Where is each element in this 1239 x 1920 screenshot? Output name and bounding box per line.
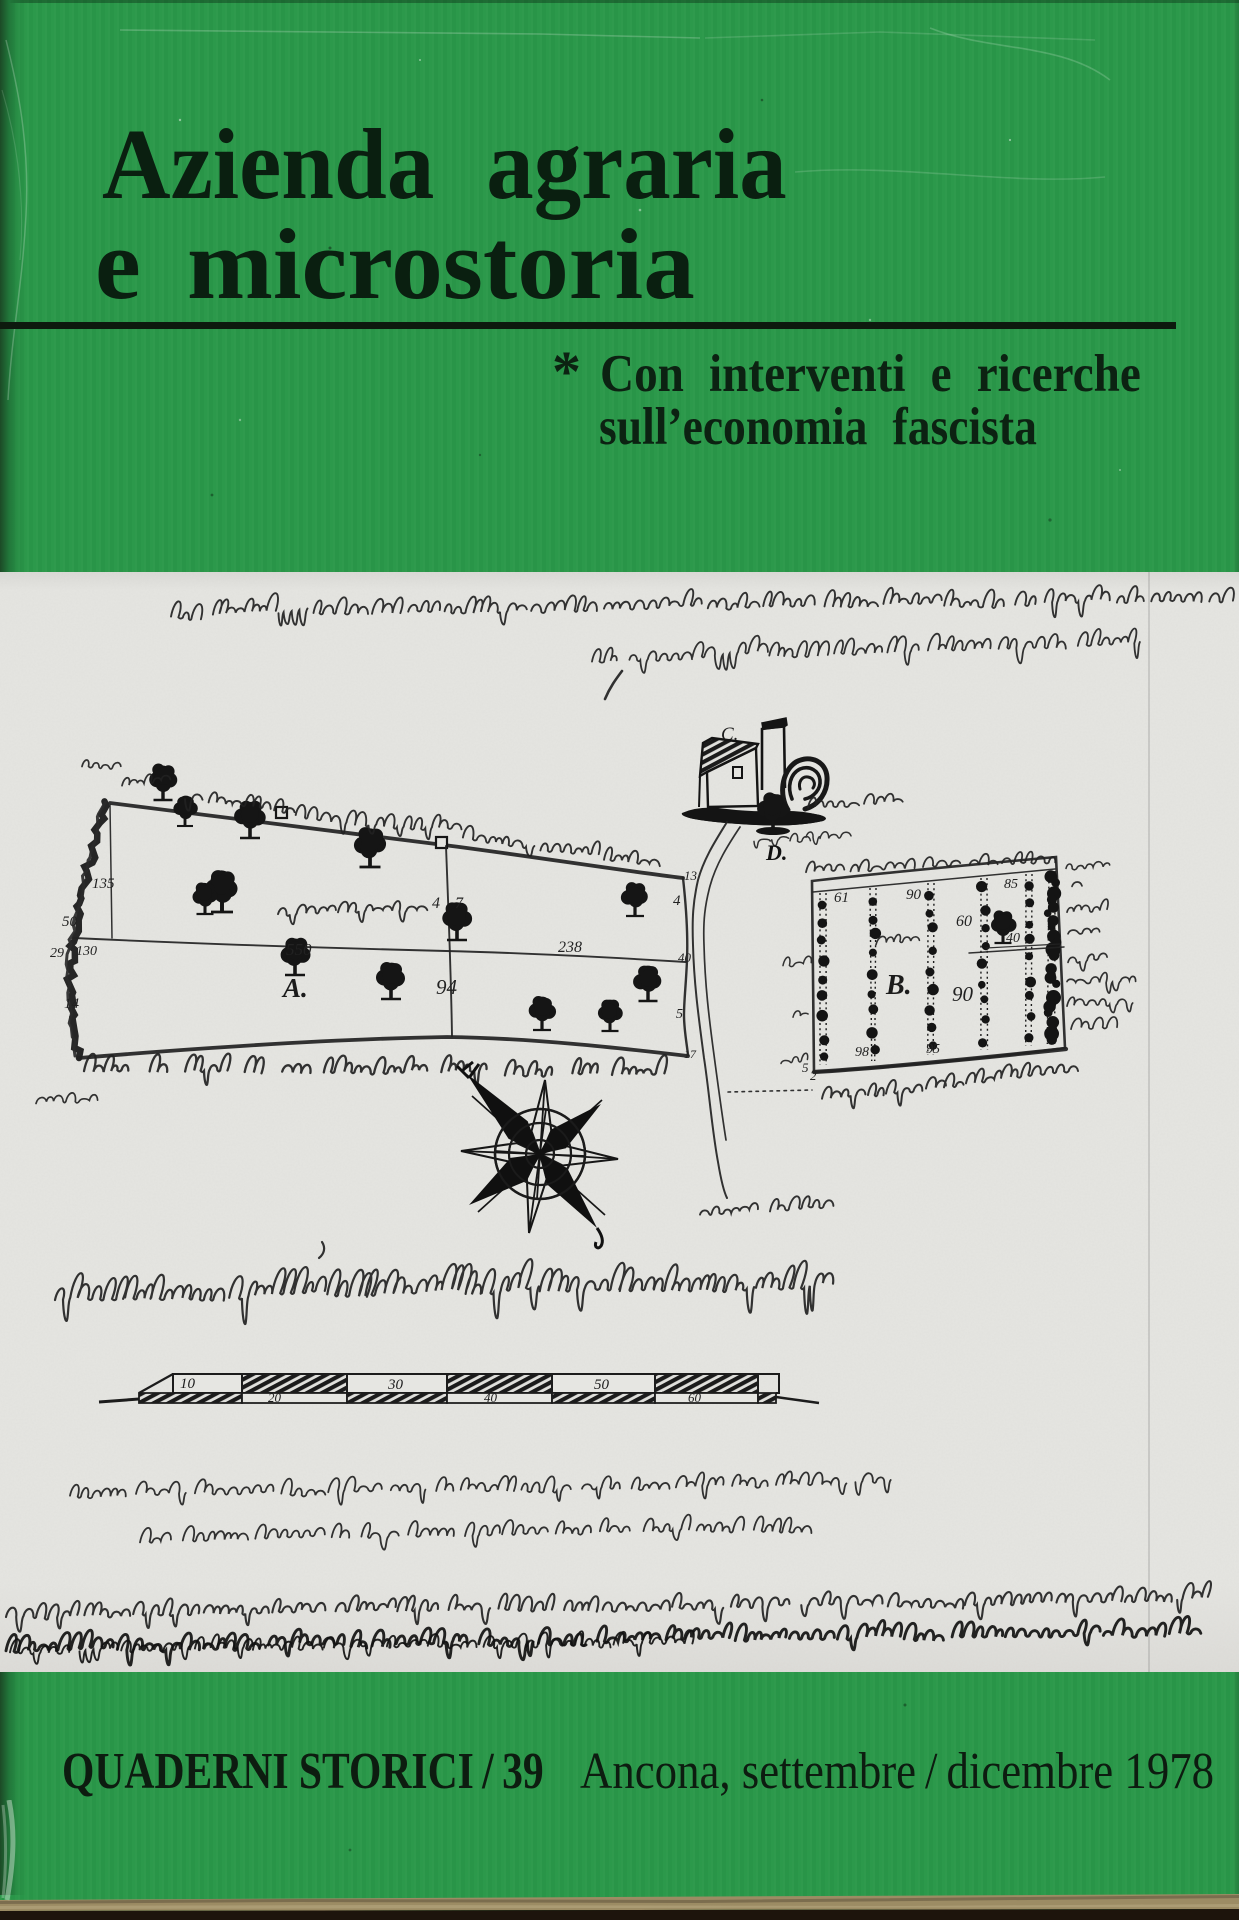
- svg-text:2: 2: [810, 1068, 817, 1083]
- svg-text:40: 40: [484, 1390, 498, 1405]
- svg-text:B.: B.: [885, 970, 912, 1001]
- svg-text:50: 50: [594, 1377, 610, 1393]
- svg-text:94: 94: [436, 975, 458, 999]
- svg-text:130: 130: [76, 944, 97, 959]
- svg-text:238: 238: [558, 939, 582, 956]
- svg-text:20: 20: [268, 1390, 282, 1405]
- svg-text:A.: A.: [281, 973, 308, 1003]
- svg-text:550: 550: [286, 940, 312, 959]
- svg-text:14: 14: [64, 996, 80, 1012]
- svg-text:40: 40: [1006, 931, 1020, 946]
- svg-text:95: 95: [926, 1042, 940, 1057]
- svg-text:85: 85: [1004, 877, 1018, 892]
- svg-text:5: 5: [676, 1007, 683, 1022]
- svg-text:40: 40: [678, 950, 692, 965]
- svg-text:13: 13: [684, 868, 698, 883]
- svg-text:D.: D.: [765, 840, 787, 865]
- svg-text:17: 17: [684, 1047, 697, 1061]
- svg-text:90: 90: [952, 982, 974, 1006]
- svg-text:60: 60: [688, 1390, 702, 1405]
- svg-text:C.: C.: [721, 724, 738, 745]
- svg-text:135: 135: [92, 876, 115, 892]
- svg-text:50: 50: [62, 914, 78, 930]
- svg-text:30: 30: [387, 1377, 404, 1393]
- svg-text:29: 29: [50, 946, 64, 961]
- svg-text:98: 98: [855, 1045, 869, 1060]
- svg-text:60: 60: [956, 913, 972, 930]
- svg-text:7: 7: [455, 895, 464, 912]
- svg-text:10: 10: [180, 1376, 196, 1392]
- svg-text:90: 90: [906, 887, 922, 903]
- svg-text:4: 4: [673, 893, 681, 909]
- svg-text:5: 5: [802, 1060, 809, 1075]
- svg-text:61: 61: [834, 890, 849, 906]
- svg-text:4: 4: [432, 895, 440, 912]
